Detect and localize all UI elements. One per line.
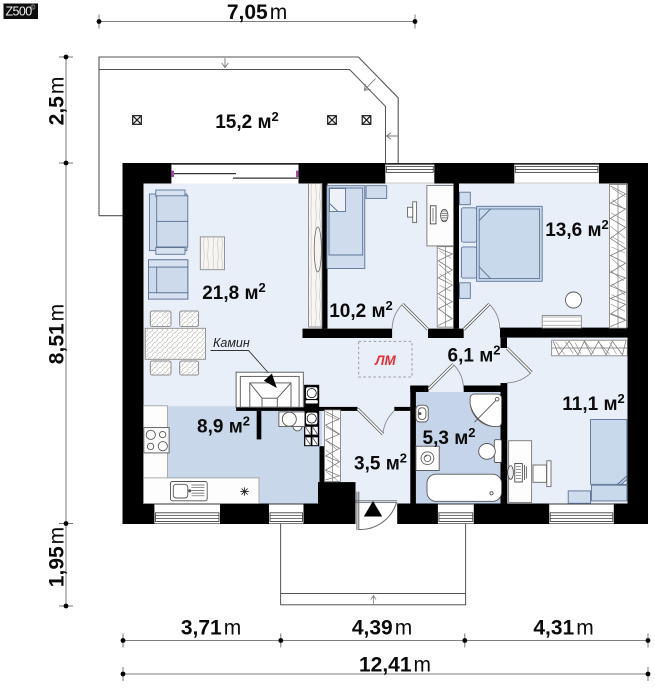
svg-text:1,95m: 1,95m [46, 527, 69, 587]
svg-text:4,39m: 4,39m [352, 616, 412, 639]
svg-text:10,2 м2: 10,2 м2 [329, 298, 393, 322]
svg-text:2,5m: 2,5m [46, 77, 69, 126]
svg-text:11,1 м2: 11,1 м2 [562, 391, 625, 415]
svg-text:5,3 м2: 5,3 м2 [423, 425, 476, 449]
svg-text:13,6 м2: 13,6 м2 [545, 217, 609, 241]
svg-text:8,51m: 8,51m [46, 304, 69, 364]
svg-text:7,05m: 7,05m [227, 1, 287, 24]
svg-text:Камин: Камин [213, 336, 250, 350]
svg-text:21,8 м2: 21,8 м2 [202, 280, 266, 304]
svg-text:©: © [31, 4, 36, 12]
svg-text:3,71m: 3,71m [181, 616, 241, 639]
svg-text:4,31m: 4,31m [533, 616, 593, 639]
svg-text:6,1 м2: 6,1 м2 [448, 343, 501, 367]
svg-text:15,2 м2: 15,2 м2 [215, 109, 279, 133]
svg-text:ЛМ: ЛМ [374, 353, 396, 368]
svg-text:3,5 м2: 3,5 м2 [354, 451, 407, 475]
svg-text:Z500: Z500 [6, 5, 33, 19]
svg-text:8,9 м2: 8,9 м2 [197, 414, 250, 438]
svg-text:12,41m: 12,41m [359, 654, 431, 677]
